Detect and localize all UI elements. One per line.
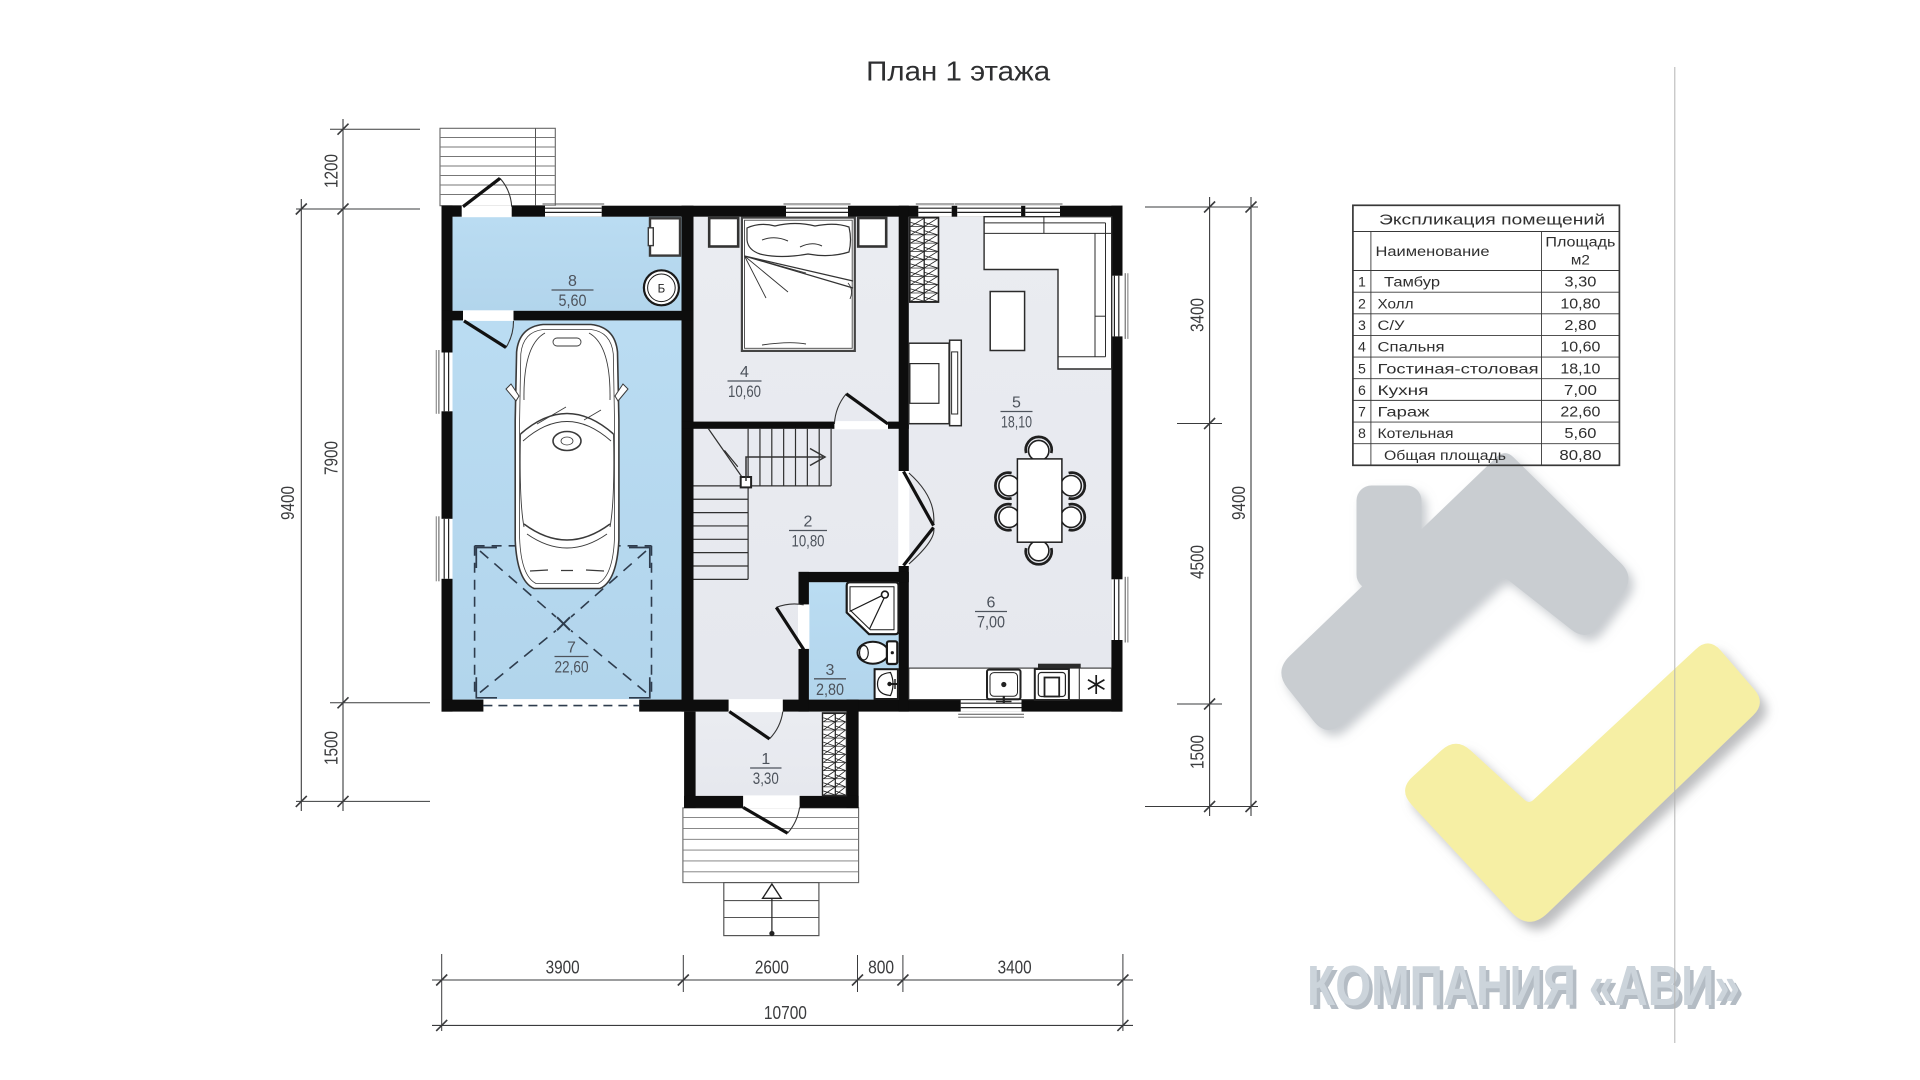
svg-text:80,80: 80,80: [1559, 448, 1601, 464]
svg-text:800: 800: [868, 957, 894, 978]
svg-text:3,30: 3,30: [1564, 275, 1596, 291]
svg-text:Экспликация помещений: Экспликация помещений: [1379, 213, 1605, 229]
svg-text:10,80: 10,80: [792, 533, 825, 551]
svg-text:4: 4: [1358, 340, 1366, 356]
svg-text:10,60: 10,60: [728, 383, 761, 401]
svg-text:1500: 1500: [1187, 735, 1208, 769]
svg-text:3400: 3400: [998, 957, 1032, 978]
svg-text:5: 5: [1358, 361, 1366, 377]
svg-text:Общая площадь: Общая площадь: [1384, 448, 1506, 464]
svg-text:План 1 этажа: План 1 этажа: [866, 56, 1051, 87]
svg-text:6: 6: [1358, 383, 1366, 399]
svg-text:3: 3: [826, 662, 835, 679]
svg-text:Наименование: Наименование: [1376, 244, 1490, 260]
svg-text:22,60: 22,60: [1560, 405, 1600, 421]
svg-text:2,80: 2,80: [1564, 318, 1596, 334]
svg-text:8: 8: [1358, 426, 1366, 442]
svg-text:10,60: 10,60: [1560, 340, 1600, 356]
svg-text:7900: 7900: [321, 441, 342, 475]
svg-text:2: 2: [804, 514, 813, 531]
svg-text:10700: 10700: [764, 1002, 807, 1023]
svg-text:Спальня: Спальня: [1378, 340, 1445, 356]
svg-text:2: 2: [1358, 296, 1366, 312]
svg-text:1: 1: [761, 751, 770, 768]
svg-text:6: 6: [987, 595, 996, 612]
svg-text:7,00: 7,00: [1564, 383, 1597, 399]
svg-text:2,80: 2,80: [816, 681, 844, 699]
svg-text:18,10: 18,10: [1001, 414, 1032, 432]
svg-text:2600: 2600: [755, 957, 789, 978]
svg-text:22,60: 22,60: [555, 659, 589, 677]
svg-text:3400: 3400: [1187, 298, 1208, 332]
svg-text:Котельная: Котельная: [1378, 426, 1454, 442]
svg-text:9400: 9400: [1228, 486, 1249, 520]
svg-text:Площадь: Площадь: [1545, 235, 1615, 251]
svg-text:7,00: 7,00: [977, 614, 1005, 632]
svg-text:8: 8: [568, 273, 577, 290]
svg-text:7: 7: [1358, 405, 1366, 421]
svg-text:м2: м2: [1571, 253, 1590, 269]
svg-text:Гараж: Гараж: [1378, 405, 1431, 421]
svg-text:18,10: 18,10: [1560, 361, 1600, 377]
svg-text:1500: 1500: [321, 731, 342, 765]
svg-text:9400: 9400: [277, 486, 298, 520]
svg-text:3: 3: [1358, 318, 1366, 334]
svg-text:Тамбур: Тамбур: [1384, 275, 1440, 291]
svg-text:Гостиная-столовая: Гостиная-столовая: [1378, 361, 1539, 377]
svg-text:1: 1: [1358, 275, 1366, 291]
svg-text:5,60: 5,60: [559, 292, 587, 310]
svg-text:3,30: 3,30: [753, 770, 779, 788]
svg-text:4: 4: [740, 364, 749, 381]
svg-text:С/У: С/У: [1378, 318, 1406, 334]
svg-text:7: 7: [567, 640, 576, 657]
svg-text:5: 5: [1012, 395, 1021, 412]
svg-text:Кухня: Кухня: [1378, 383, 1429, 399]
svg-text:5,60: 5,60: [1564, 426, 1596, 442]
svg-text:3900: 3900: [546, 957, 580, 978]
svg-text:Холл: Холл: [1378, 296, 1414, 312]
svg-text:10,80: 10,80: [1560, 296, 1600, 312]
svg-text:4500: 4500: [1187, 545, 1208, 579]
svg-text:Б: Б: [658, 283, 666, 295]
svg-text:1200: 1200: [321, 154, 342, 188]
